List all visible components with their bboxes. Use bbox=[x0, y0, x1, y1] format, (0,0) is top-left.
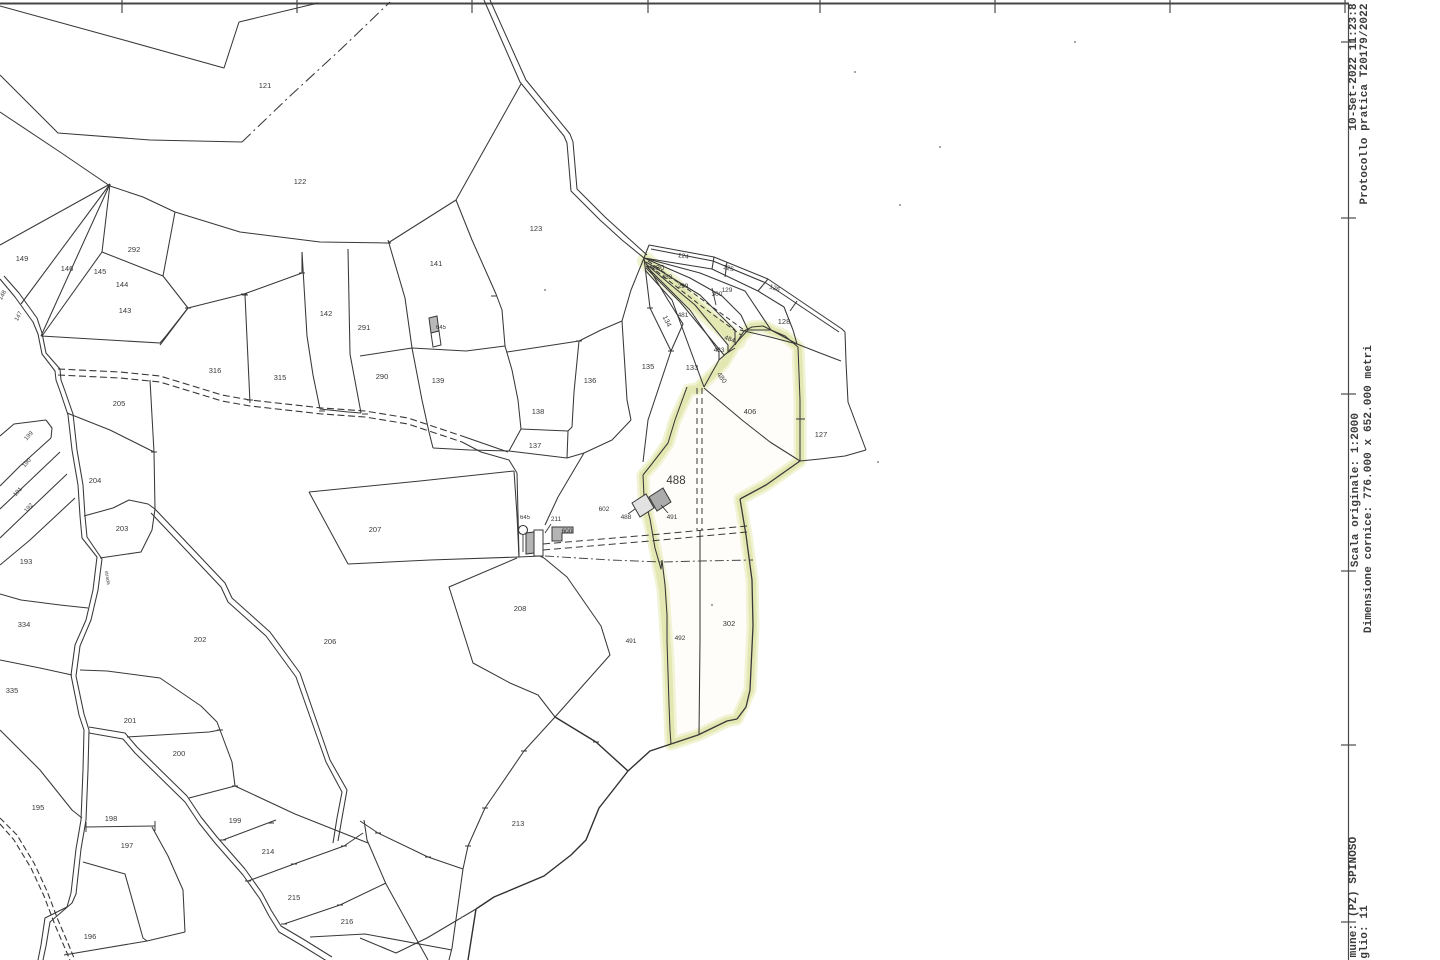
svg-text:290: 290 bbox=[376, 372, 389, 381]
svg-text:Scala originale: 1:2000: Scala originale: 1:2000 bbox=[1350, 413, 1362, 567]
svg-text:133: 133 bbox=[686, 363, 699, 372]
svg-text:138: 138 bbox=[532, 407, 545, 416]
svg-text:196: 196 bbox=[84, 932, 97, 941]
svg-text:216: 216 bbox=[341, 917, 354, 926]
svg-text:190: 190 bbox=[22, 457, 34, 469]
svg-text:134: 134 bbox=[661, 315, 672, 329]
svg-text:199: 199 bbox=[24, 430, 36, 442]
svg-text:488: 488 bbox=[666, 475, 685, 487]
svg-text:121: 121 bbox=[259, 81, 272, 90]
svg-text:200: 200 bbox=[173, 749, 186, 758]
svg-text:292: 292 bbox=[128, 245, 141, 254]
svg-text:198: 198 bbox=[105, 814, 118, 823]
svg-text:137: 137 bbox=[529, 441, 542, 450]
svg-text:482: 482 bbox=[662, 274, 673, 281]
svg-text:145: 145 bbox=[94, 267, 107, 276]
svg-text:302: 302 bbox=[723, 619, 736, 628]
svg-text:291: 291 bbox=[358, 323, 371, 332]
svg-text:130: 130 bbox=[652, 263, 665, 272]
svg-text:214: 214 bbox=[262, 847, 275, 856]
svg-text:492: 492 bbox=[675, 635, 686, 642]
svg-text:147: 147 bbox=[14, 310, 24, 322]
svg-text:483: 483 bbox=[714, 347, 725, 354]
svg-text:602: 602 bbox=[599, 506, 610, 513]
svg-text:149: 149 bbox=[16, 254, 29, 263]
svg-text:127: 127 bbox=[815, 430, 828, 439]
svg-text:199: 199 bbox=[229, 816, 242, 825]
svg-text:192: 192 bbox=[24, 502, 36, 514]
svg-text:144: 144 bbox=[116, 280, 129, 289]
svg-text:128: 128 bbox=[778, 317, 791, 326]
svg-text:122: 122 bbox=[294, 177, 307, 186]
svg-text:129: 129 bbox=[722, 287, 733, 294]
svg-text:600: 600 bbox=[562, 528, 573, 535]
svg-text:123: 123 bbox=[530, 224, 543, 233]
svg-text:strada: strada bbox=[103, 570, 111, 585]
svg-text:146: 146 bbox=[61, 264, 74, 273]
svg-text:142: 142 bbox=[320, 309, 333, 318]
svg-text:125: 125 bbox=[722, 264, 735, 274]
svg-text:139: 139 bbox=[432, 376, 445, 385]
svg-text:481: 481 bbox=[678, 312, 689, 319]
svg-text:148: 148 bbox=[0, 289, 8, 301]
svg-text:491: 491 bbox=[626, 638, 637, 645]
svg-text:141: 141 bbox=[430, 259, 443, 268]
svg-text:491: 491 bbox=[667, 514, 678, 521]
svg-text:135: 135 bbox=[642, 362, 655, 371]
svg-text:208: 208 bbox=[514, 604, 527, 613]
svg-text:136: 136 bbox=[584, 376, 597, 385]
svg-text:201: 201 bbox=[124, 716, 137, 725]
svg-text:202: 202 bbox=[194, 635, 207, 644]
svg-text:glio: 11: glio: 11 bbox=[1359, 905, 1371, 959]
svg-text:335: 335 bbox=[6, 686, 19, 695]
svg-text:124: 124 bbox=[677, 252, 689, 261]
svg-text:197: 197 bbox=[121, 841, 134, 850]
svg-text:204: 204 bbox=[89, 476, 102, 485]
svg-text:211: 211 bbox=[551, 516, 562, 523]
svg-text:Dimensione cornice: 776.000 x: Dimensione cornice: 776.000 x 652.000 me… bbox=[1363, 345, 1375, 633]
svg-text:205: 205 bbox=[113, 399, 126, 408]
svg-text:334: 334 bbox=[18, 620, 31, 629]
svg-text:645: 645 bbox=[520, 515, 531, 521]
svg-text:203: 203 bbox=[116, 524, 129, 533]
svg-text:406: 406 bbox=[744, 407, 757, 416]
svg-text:193: 193 bbox=[20, 557, 33, 566]
svg-text:207: 207 bbox=[369, 525, 382, 534]
svg-text:Protocollo pratica T20179/2022: Protocollo pratica T20179/2022 bbox=[1359, 3, 1371, 204]
svg-text:316: 316 bbox=[209, 366, 222, 375]
svg-text:143: 143 bbox=[119, 306, 132, 315]
svg-text:299: 299 bbox=[678, 283, 689, 290]
svg-text:645: 645 bbox=[436, 325, 447, 331]
svg-text:215: 215 bbox=[288, 893, 301, 902]
svg-text:213: 213 bbox=[512, 819, 525, 828]
svg-text:206: 206 bbox=[324, 637, 337, 646]
svg-text:315: 315 bbox=[274, 373, 287, 382]
svg-text:488: 488 bbox=[621, 514, 632, 521]
svg-text:195: 195 bbox=[32, 803, 45, 812]
